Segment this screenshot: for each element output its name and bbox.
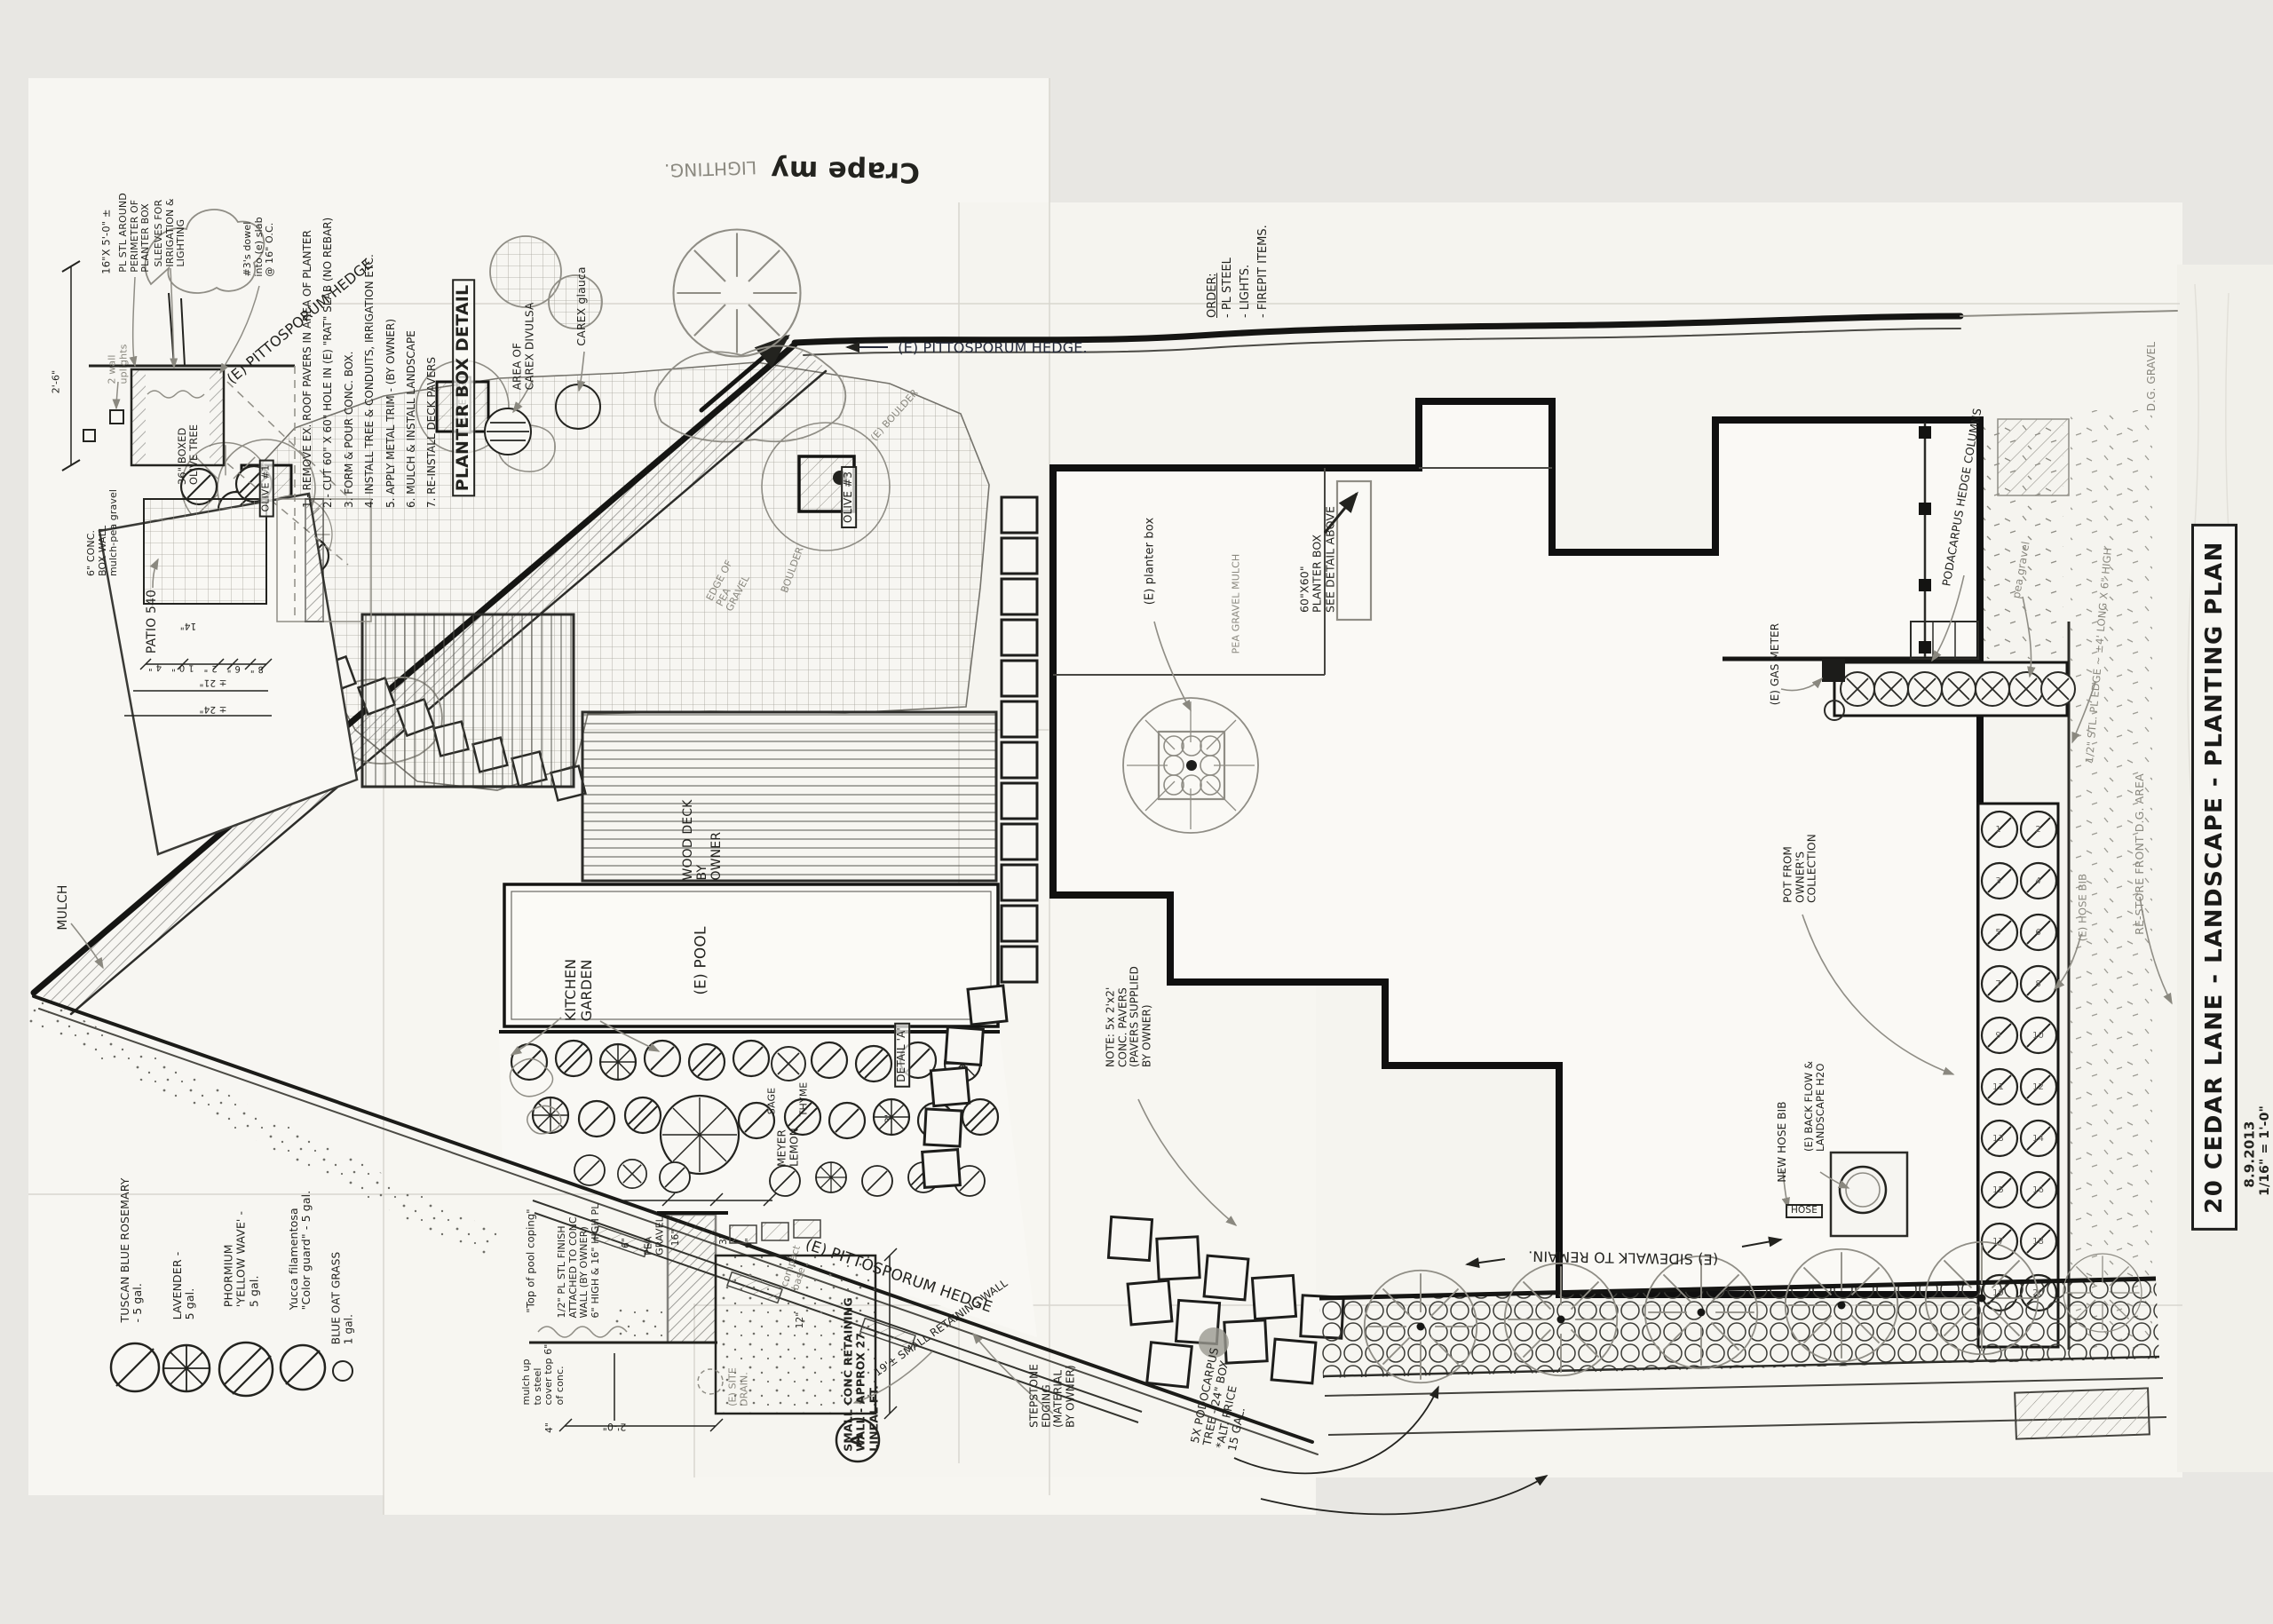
- north-court-strip: [1822, 659, 2075, 720]
- plant-number: 19: [1992, 1288, 2004, 1298]
- plant-number: 11: [1992, 1082, 2004, 1092]
- plant-number: 15: [1992, 1185, 2004, 1195]
- wood-deck-upper: [362, 614, 574, 787]
- plant-number: 5: [1995, 928, 2000, 938]
- plant-number: 7: [1995, 979, 2000, 989]
- legend-label-rosemary: TUSCAN BLUE ROSEMARY - 5 gal.: [119, 1178, 145, 1323]
- sheet-date: 8.9.2013: [2242, 1121, 2257, 1187]
- gas-meter: [1822, 659, 1845, 682]
- callout-sleeves: SLEEVES FOR IRRIGATION & LIGHTING: [154, 198, 187, 266]
- plant-number: 2: [2035, 825, 2040, 835]
- backflow-equipment: [1831, 1153, 1907, 1236]
- label-gas-meter: (E) GAS METER: [1770, 623, 1782, 705]
- callout-site-drain: (E) SITE DRAIN.: [727, 1367, 749, 1406]
- label-carex-glauca: CAREX glauca: [575, 266, 588, 345]
- label-restore-dg-area: RE-STORE FRONT D.G. AREA: [2134, 773, 2146, 935]
- label-lighting: LIGHTING.: [663, 157, 756, 180]
- planter-box-notes: 1.- REMOVE EX. ROOF PAVERS IN AREA OF PL…: [297, 188, 448, 508]
- dim-9: 9": [745, 1238, 756, 1248]
- dim-2-6: 2'-6": [51, 370, 63, 394]
- dim-16: 16": [671, 1230, 682, 1247]
- dim-4: 4": [545, 1422, 556, 1433]
- callout-dowels: #3's dowel into (e) slab @ 16" O.C.: [242, 217, 276, 276]
- order-item: - FIREPIT ITEMS.: [1255, 202, 1272, 318]
- carex-glauca-symbol: [556, 384, 600, 429]
- label-pool: (E) POOL: [693, 926, 709, 994]
- label-meyer-lemon: MEYER LEMON: [776, 1128, 800, 1167]
- dim-14: 14": [180, 620, 197, 630]
- plant-number: 20: [2032, 1288, 2044, 1298]
- callout-steel-size: 16"X 5'-0" ±: [100, 209, 112, 273]
- label-detail-a-dim: 3': [884, 1114, 896, 1123]
- title-block: 20 CEDAR LANE - LANDSCAPE - PLANTING PLA…: [2191, 524, 2237, 1231]
- label-dg-gravel: D.G. GRAVEL: [2146, 342, 2158, 411]
- label-sidewalk: (E) SIDEWALK TO REMAIN.: [1528, 1248, 1719, 1267]
- note-line: 1.- REMOVE EX. ROOF PAVERS IN AREA OF PL…: [297, 188, 318, 508]
- dims-small: 8" 6" 2" 10" 4": [145, 661, 264, 674]
- landscape-plan-scan: Crape my LIGHTING. (E) PITTOSPORUM HEDGE…: [0, 0, 2273, 1624]
- legend-label-yucca: Yucca filamentosa "Color guard" - 5 gal.: [288, 1191, 313, 1311]
- planter-box-detail-title: PLANTER BOX DETAIL: [452, 280, 475, 497]
- callout-steel-perimeter: PL STL AROUND PERIMETER OF PLANTER BOX: [118, 193, 152, 273]
- callout-box-wall: 6" CONC. BOX WALL mulch-pea gravel: [86, 489, 120, 576]
- label-new-hose-bib: NEW HOSE BIB: [1777, 1101, 1789, 1182]
- plant-number: 10: [2032, 1031, 2044, 1041]
- plant-number: 6: [2035, 928, 2040, 938]
- circle-slash-icon: [111, 1343, 159, 1391]
- plant-number: 3: [1995, 876, 2000, 886]
- plant-number: 12: [2032, 1082, 2044, 1092]
- dim-3: 3": [719, 1234, 730, 1245]
- label-pot-collection: POT FROM OWNER'S COLLECTION: [1782, 834, 1818, 903]
- order-item: - LIGHTS.: [1237, 202, 1255, 318]
- label-hedge-top: (E) PITTOSPORUM HEDGE.: [898, 340, 1088, 356]
- legend-label-lavender: LAVENDER - 5 gal.: [171, 1252, 197, 1320]
- label-olive-1: OLIVE #1: [259, 459, 274, 517]
- sheet-scale: 1/16" = 1'-0": [2259, 1105, 2273, 1196]
- label-wood-deck: WOOD DECK BY OWNER: [682, 800, 725, 881]
- plant-number: 16: [2032, 1185, 2044, 1195]
- drive-apron: [1998, 419, 2069, 495]
- dim-2-0: 2'-0": [603, 1421, 627, 1432]
- circle-double-slash-icon: [219, 1343, 273, 1396]
- note-line: 2.- CUT 60" X 60" HOLE IN (E) "RAT" SLAB…: [318, 188, 338, 508]
- plant-number: 13: [1992, 1134, 2004, 1144]
- label-hose: HOSE: [1786, 1204, 1823, 1218]
- wood-deck-main: [582, 712, 996, 881]
- plant-number: 4: [2035, 876, 2040, 886]
- label-60x60-planter: 60"X60" PLANTER BOX SEE DETAIL ABOVE: [1299, 506, 1337, 613]
- callout-pool-coping: "Top of pool coping": [525, 1208, 536, 1312]
- label-note-pavers: NOTE: 5x 2'x2' CONC. PAVERS (PAVERS SUPP…: [1105, 966, 1154, 1067]
- order-item: - PL STEEL: [1219, 202, 1237, 318]
- sheet-title: 20 CEDAR LANE - LANDSCAPE - PLANTING PLA…: [2201, 541, 2228, 1214]
- retaining-wall-title: SMALL CONC RETAINING WALL - APPROX 27 LI…: [843, 1297, 881, 1452]
- label-existing-planter-box: (E) planter box: [1144, 518, 1158, 606]
- label-olive-3: OLIVE #3: [841, 466, 857, 528]
- order-items: - PL STEEL- LIGHTS.- FIREPIT ITEMS.: [1219, 202, 1272, 318]
- detail-a-bubble-letter: A: [849, 1434, 867, 1446]
- plant-number: 8: [2035, 979, 2040, 989]
- label-sage: SAGE: [767, 1088, 779, 1114]
- dim-24: ± 24": [199, 703, 226, 715]
- plant-number: 17: [1992, 1237, 2004, 1247]
- label-pea-gravel-mulch: PEA GRAVEL MULCH: [1232, 554, 1243, 654]
- label-mulch: MULCH: [57, 884, 71, 930]
- small-circle-icon: [333, 1361, 352, 1381]
- label-carex-divulsa: AREA OF CAREX DIVULSA: [511, 303, 535, 391]
- callout-pea-gravel: PEA GRAVEL: [643, 1216, 665, 1256]
- legend-label-phormium: PHORMIUM 'YELLOW WAVE' - 5 gal.: [223, 1211, 261, 1307]
- callout-mulch-up: mulch up to steel cover top 6" of conc.: [521, 1344, 566, 1406]
- circle-spokes-icon: [163, 1345, 210, 1391]
- note-line: 7. RE-INSTALL DECK PAVERS: [422, 188, 442, 508]
- callout-boxed-olive: 36" BOXED OLIVE TREE: [177, 424, 200, 485]
- label-detail-a-ref: DETAIL 'A': [894, 1022, 910, 1087]
- order-note: ORDER: - PL STEEL- LIGHTS.- FIREPIT ITEM…: [1206, 202, 1295, 318]
- label-thyme: THYME: [799, 1082, 811, 1117]
- note-line: 6. MULCH & INSTALL LANDSCAPE: [401, 188, 422, 508]
- dim-6: 6": [622, 1238, 632, 1248]
- label-patio: PATIO 540: [146, 590, 160, 654]
- plant-number: 14: [2032, 1134, 2044, 1144]
- order-heading: ORDER:: [1206, 202, 1219, 318]
- east-strip-plant-numbers: 1234567891011121314151617181920: [1978, 804, 2058, 1319]
- callout-steel-finish: 1/2" PL STL FINISH ATTACHED TO CONC. WAL…: [557, 1204, 601, 1319]
- note-line: 4. INSTALL TREE & CONDUITS, IRRIGATION E…: [360, 188, 380, 508]
- note-line: 3. FORM & POUR CONC. BOX.: [339, 188, 360, 508]
- label-crape-myrtle: Crape my: [771, 154, 921, 187]
- callout-uplights: 2 wall uplights: [107, 345, 129, 384]
- label-kitchen-garden: KITCHEN GARDEN: [563, 959, 595, 1021]
- label-stepstone-edging: STEPSTONE EDGING (MATERIAL BY OWNER): [1029, 1364, 1078, 1428]
- plant-number: 9: [1995, 1031, 2000, 1041]
- plant-number: 18: [2032, 1237, 2044, 1247]
- label-backflow: (E) BACK FLOW & LANDSCAPE H2O: [1803, 1061, 1826, 1152]
- dim-21: ± 21": [199, 677, 226, 688]
- circle-slash-icon: [281, 1345, 325, 1390]
- legend-label-blue-oat: BLUE OAT GRASS 1 gal.: [330, 1252, 354, 1344]
- label-existing-hose-bib: (E) HOSE BIB: [2077, 874, 2088, 941]
- plant-number: 1: [1995, 825, 2000, 835]
- note-line: 5. APPLY METAL TRIM - (BY OWNER): [381, 188, 401, 508]
- dim-12: 12": [796, 1312, 806, 1329]
